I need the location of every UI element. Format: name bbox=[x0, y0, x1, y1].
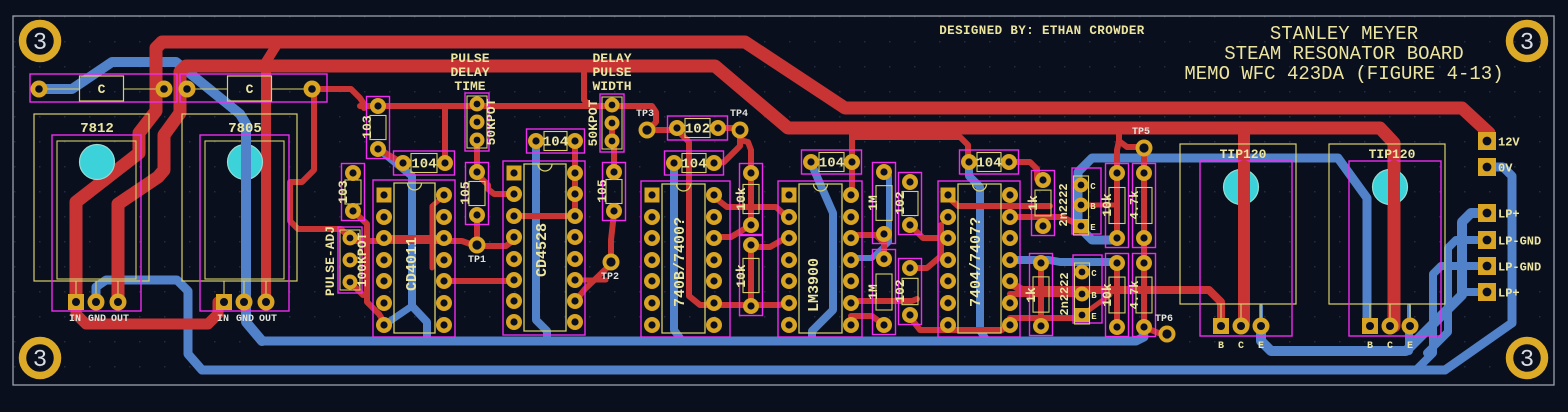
svg-text:740B/7400?: 740B/7400? bbox=[672, 217, 689, 307]
svg-text:3: 3 bbox=[33, 30, 47, 57]
svg-text:TP5: TP5 bbox=[1132, 127, 1150, 138]
svg-text:DELAY: DELAY bbox=[450, 65, 489, 80]
svg-text:B: B bbox=[1367, 341, 1373, 352]
svg-text:12V: 12V bbox=[1498, 136, 1520, 150]
svg-text:C: C bbox=[1238, 341, 1244, 352]
svg-text:105: 105 bbox=[458, 181, 473, 205]
svg-text:50KPOT: 50KPOT bbox=[484, 98, 499, 145]
svg-text:4.7k: 4.7k bbox=[1128, 191, 1142, 220]
svg-text:3: 3 bbox=[1520, 30, 1534, 57]
svg-text:B: B bbox=[1090, 202, 1096, 212]
svg-text:IN: IN bbox=[69, 314, 81, 325]
svg-text:DELAY: DELAY bbox=[592, 51, 631, 66]
svg-text:10k: 10k bbox=[1100, 193, 1115, 217]
svg-text:7805: 7805 bbox=[228, 121, 262, 137]
svg-text:LM3900: LM3900 bbox=[806, 258, 823, 312]
svg-text:STANLEY MEYER: STANLEY MEYER bbox=[1270, 23, 1418, 45]
svg-text:DESIGNED BY: ETHAN CROWDER: DESIGNED BY: ETHAN CROWDER bbox=[939, 24, 1145, 38]
svg-text:10k: 10k bbox=[1100, 283, 1115, 307]
svg-text:E: E bbox=[1091, 312, 1097, 322]
svg-text:GND: GND bbox=[236, 314, 254, 325]
svg-text:103: 103 bbox=[360, 115, 375, 139]
svg-text:105: 105 bbox=[595, 179, 610, 203]
svg-text:TP1: TP1 bbox=[468, 255, 486, 266]
svg-text:104: 104 bbox=[819, 156, 844, 172]
svg-text:LP-GND: LP-GND bbox=[1498, 261, 1541, 275]
svg-text:104: 104 bbox=[543, 135, 568, 151]
svg-text:C: C bbox=[246, 82, 254, 97]
svg-text:TP3: TP3 bbox=[636, 109, 654, 120]
svg-text:LP+: LP+ bbox=[1498, 287, 1520, 301]
svg-text:TIP120: TIP120 bbox=[1369, 147, 1416, 162]
svg-text:WIDTH: WIDTH bbox=[592, 79, 631, 94]
svg-text:2n2222: 2n2222 bbox=[1058, 272, 1072, 315]
svg-text:C: C bbox=[98, 82, 106, 97]
svg-text:E: E bbox=[1258, 341, 1264, 352]
svg-text:C: C bbox=[1090, 182, 1096, 192]
svg-text:E: E bbox=[1407, 341, 1413, 352]
svg-text:102: 102 bbox=[893, 191, 908, 215]
svg-text:PULSE: PULSE bbox=[592, 65, 631, 80]
svg-text:1M: 1M bbox=[866, 284, 881, 300]
svg-text:MEMO WFC 423DA (FIGURE 4-13): MEMO WFC 423DA (FIGURE 4-13) bbox=[1184, 63, 1503, 85]
svg-text:OUT: OUT bbox=[259, 314, 277, 325]
svg-text:3: 3 bbox=[33, 347, 47, 374]
svg-text:102: 102 bbox=[893, 279, 908, 303]
svg-text:2n2222: 2n2222 bbox=[1057, 183, 1071, 226]
svg-text:CD4528: CD4528 bbox=[534, 223, 551, 277]
svg-text:3: 3 bbox=[1520, 347, 1534, 374]
svg-text:104: 104 bbox=[411, 157, 436, 173]
svg-text:GND: GND bbox=[88, 314, 106, 325]
svg-text:0V: 0V bbox=[1498, 162, 1513, 176]
svg-text:B: B bbox=[1091, 291, 1097, 301]
svg-text:TP6: TP6 bbox=[1155, 314, 1173, 325]
svg-text:LP+: LP+ bbox=[1498, 208, 1520, 222]
svg-text:TP4: TP4 bbox=[730, 109, 748, 120]
svg-text:100KPOT: 100KPOT bbox=[355, 232, 370, 287]
svg-text:104: 104 bbox=[976, 156, 1001, 172]
svg-text:STEAM RESONATOR BOARD: STEAM RESONATOR BOARD bbox=[1224, 43, 1463, 65]
svg-text:10k: 10k bbox=[734, 264, 749, 288]
svg-text:C: C bbox=[1091, 269, 1097, 279]
svg-text:TIP120: TIP120 bbox=[1220, 147, 1267, 162]
svg-text:E: E bbox=[1090, 223, 1096, 233]
svg-text:102: 102 bbox=[685, 122, 710, 138]
svg-text:TP2: TP2 bbox=[601, 272, 619, 283]
svg-text:1M: 1M bbox=[866, 195, 881, 211]
svg-text:PULSE-ADJ: PULSE-ADJ bbox=[323, 226, 338, 296]
svg-text:TIME: TIME bbox=[454, 79, 485, 94]
svg-text:1k: 1k bbox=[1024, 287, 1039, 303]
svg-text:CD4011: CD4011 bbox=[404, 237, 421, 291]
svg-text:C: C bbox=[1387, 341, 1393, 352]
svg-text:7404/7407?: 7404/7407? bbox=[968, 217, 985, 307]
svg-text:1k: 1k bbox=[1026, 195, 1041, 211]
svg-text:OUT: OUT bbox=[111, 314, 129, 325]
svg-text:PULSE: PULSE bbox=[450, 51, 489, 66]
svg-text:7812: 7812 bbox=[80, 121, 114, 137]
svg-text:103: 103 bbox=[336, 180, 351, 204]
svg-text:LP-GND: LP-GND bbox=[1498, 235, 1541, 249]
svg-text:4.7k: 4.7k bbox=[1128, 281, 1142, 310]
svg-text:104: 104 bbox=[681, 157, 706, 173]
svg-text:B: B bbox=[1218, 341, 1224, 352]
svg-text:IN: IN bbox=[217, 314, 229, 325]
svg-text:50KPOT: 50KPOT bbox=[586, 99, 601, 146]
svg-text:10k: 10k bbox=[734, 187, 749, 211]
